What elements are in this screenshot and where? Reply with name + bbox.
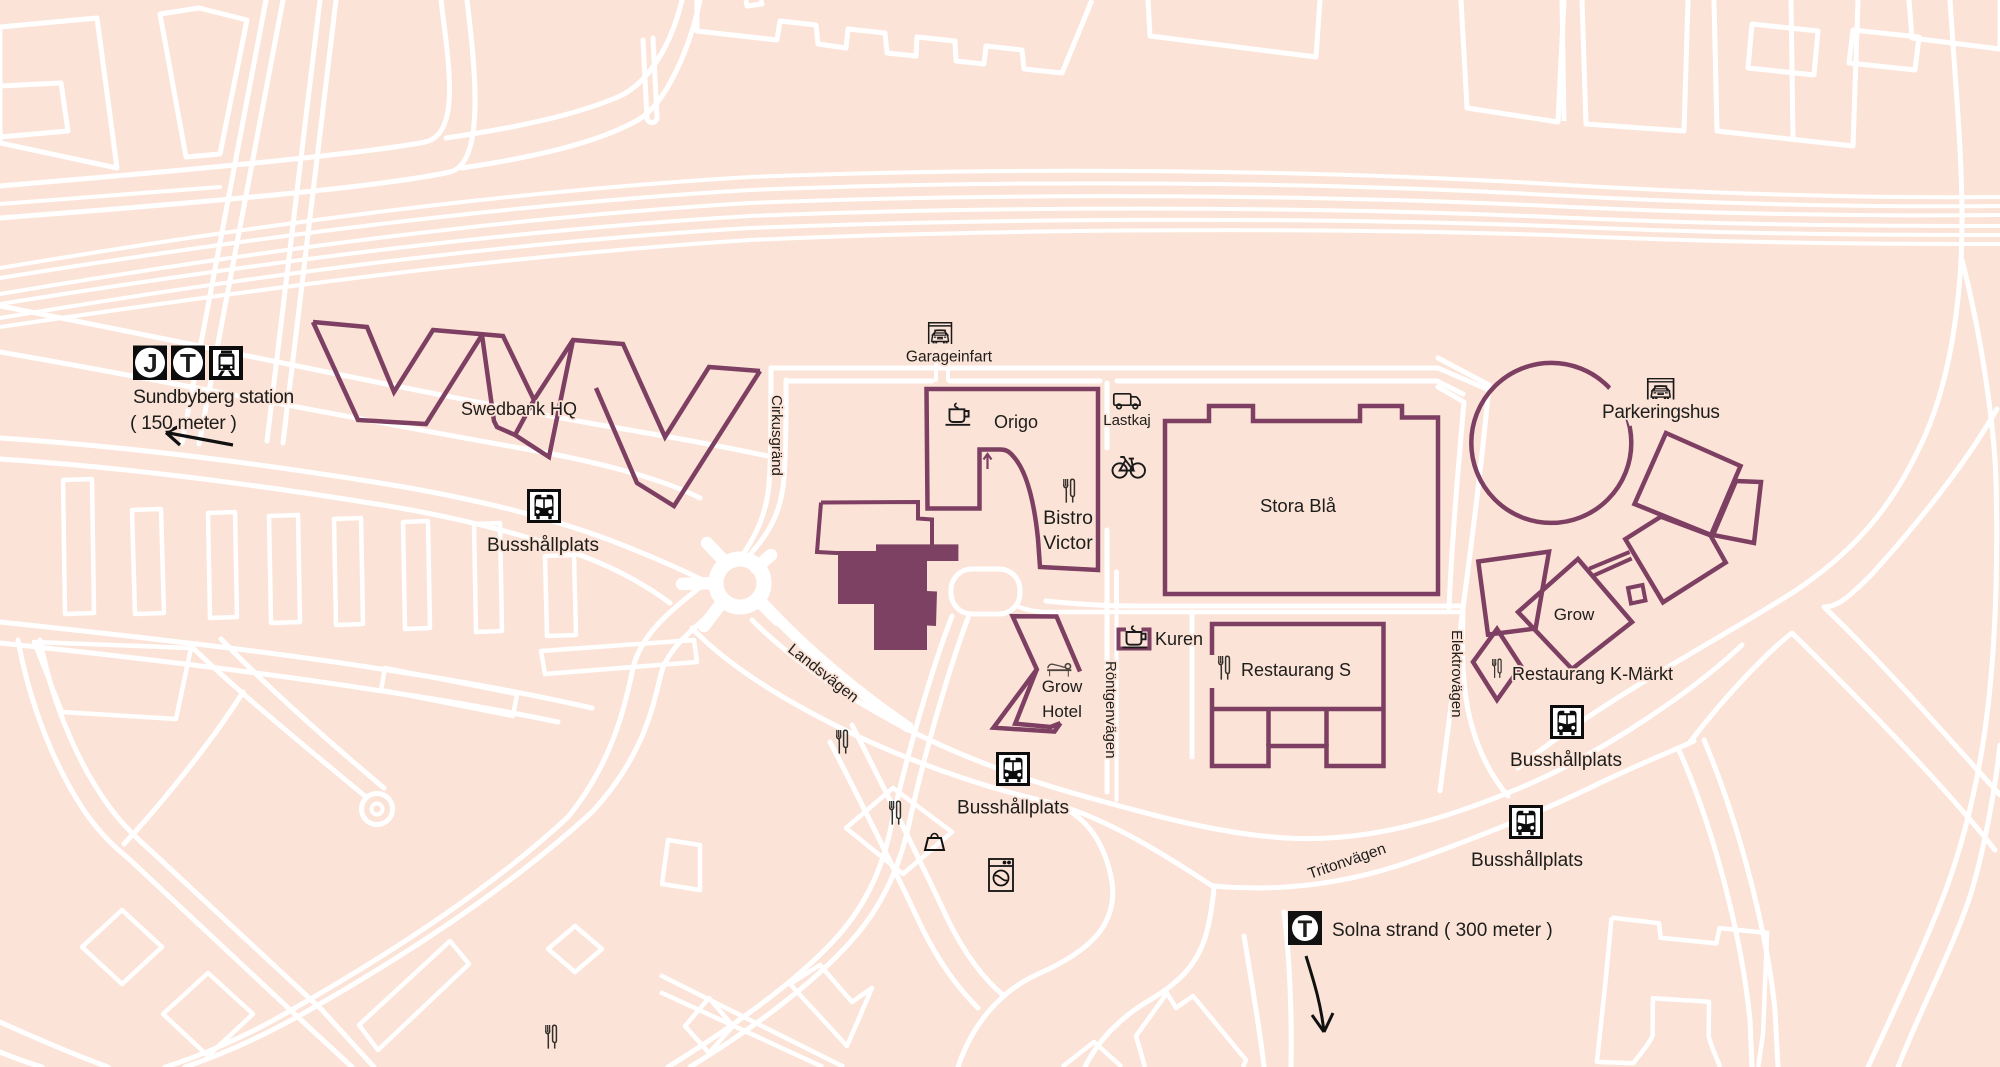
svg-text:Victor: Victor — [1043, 532, 1093, 554]
svg-text:Solna strand ( 300 meter ): Solna strand ( 300 meter ) — [1332, 920, 1553, 941]
svg-text:Lastkaj: Lastkaj — [1103, 412, 1151, 429]
svg-text:Kuren: Kuren — [1155, 629, 1203, 649]
svg-text:J: J — [143, 348, 157, 378]
svg-text:Grow: Grow — [1554, 605, 1595, 624]
svg-text:( 150 meter ): ( 150 meter ) — [130, 412, 236, 434]
svg-text:Busshållplats: Busshållplats — [957, 798, 1069, 819]
svg-text:Hotel: Hotel — [1042, 702, 1082, 721]
svg-text:Parkeringshus: Parkeringshus — [1602, 402, 1720, 423]
svg-text:Grow: Grow — [1042, 677, 1083, 696]
svg-text:T: T — [1298, 916, 1313, 943]
svg-text:Restaurang S: Restaurang S — [1241, 660, 1351, 680]
svg-text:Bistro: Bistro — [1043, 507, 1093, 529]
svg-text:Busshållplats: Busshållplats — [1510, 750, 1622, 771]
svg-text:Elektrovägen: Elektrovägen — [1448, 630, 1465, 718]
svg-text:T: T — [180, 348, 196, 378]
svg-text:Stora Blå: Stora Blå — [1260, 495, 1337, 516]
svg-text:Origo: Origo — [994, 412, 1038, 432]
svg-text:Sundbyberg station: Sundbyberg station — [133, 386, 294, 408]
svg-text:Garageinfart: Garageinfart — [906, 349, 993, 366]
svg-text:Röntgenvägen: Röntgenvägen — [1102, 661, 1119, 759]
svg-text:Swedbank HQ: Swedbank HQ — [461, 399, 577, 419]
svg-text:Cirkusgränd: Cirkusgränd — [768, 395, 785, 476]
svg-text:Restaurang K-Märkt: Restaurang K-Märkt — [1512, 664, 1673, 684]
svg-text:Busshållplats: Busshållplats — [1471, 850, 1583, 871]
svg-text:Busshållplats: Busshållplats — [487, 535, 599, 556]
